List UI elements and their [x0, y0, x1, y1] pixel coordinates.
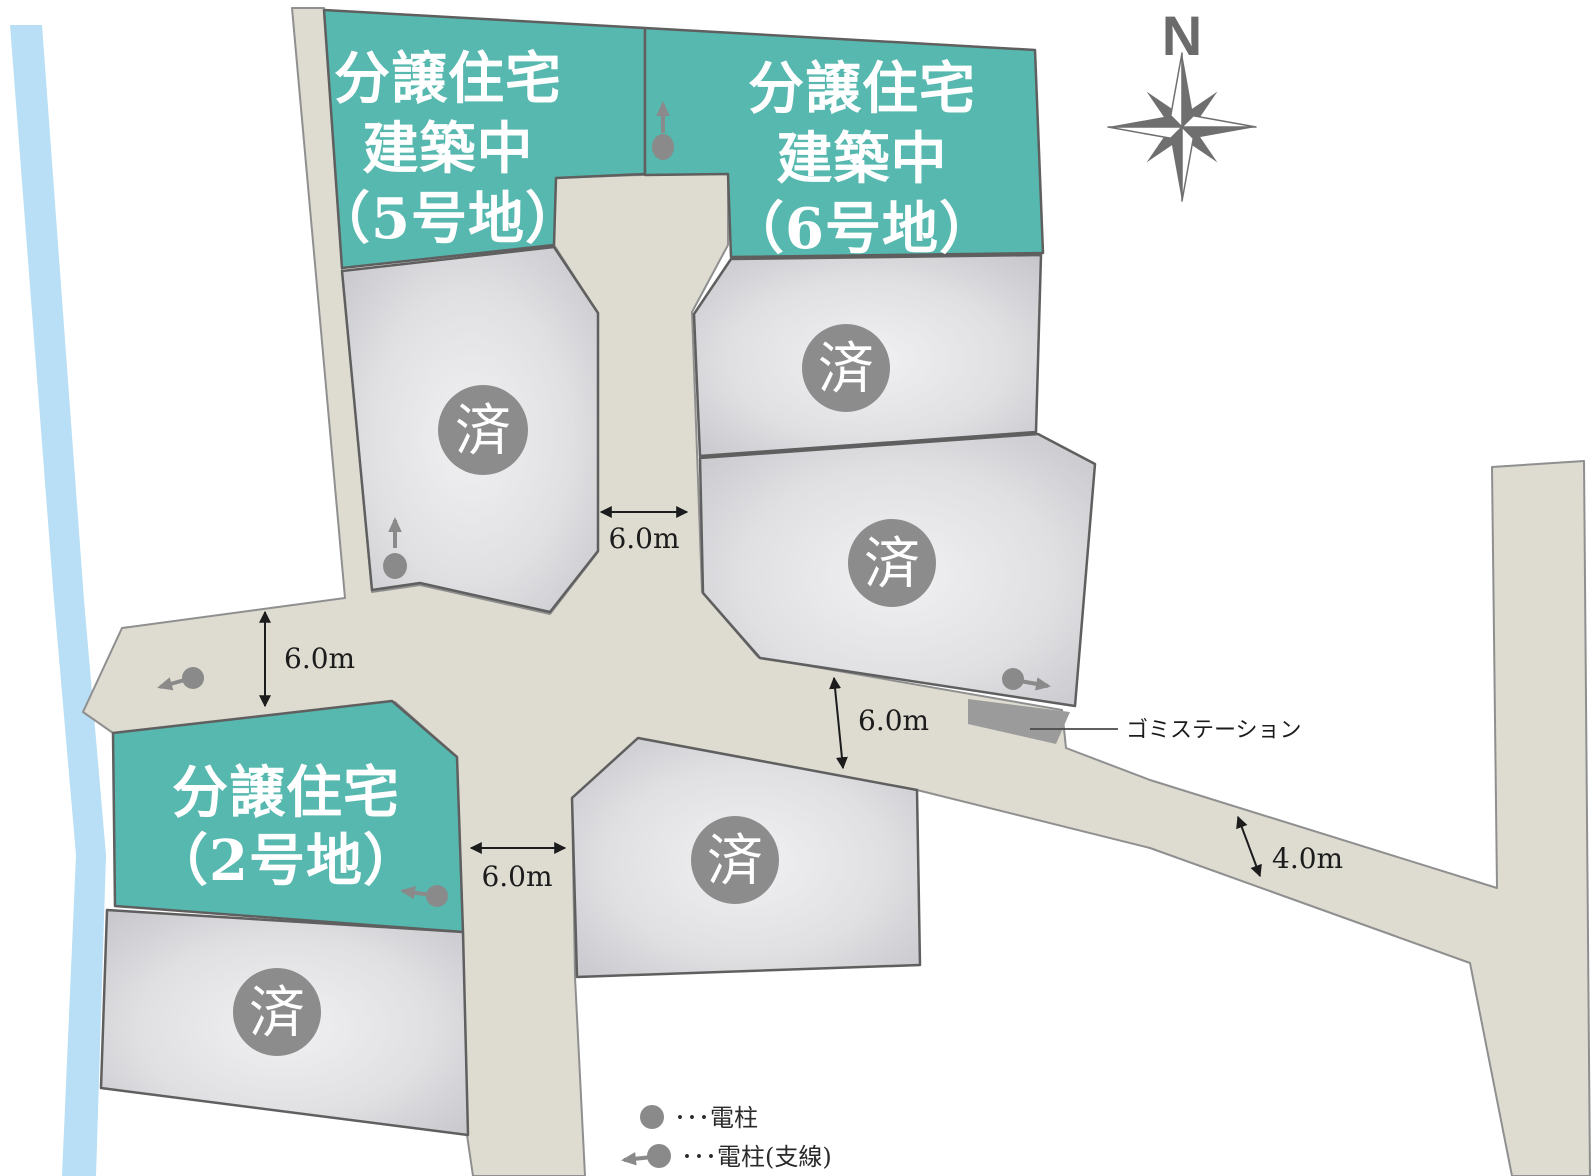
sold-badge: 済: [691, 816, 779, 904]
dimension-label-south-road: 6.0m: [481, 860, 552, 893]
lot-2-label-line2: （2号地）: [152, 828, 420, 894]
sold-badge-label: 済: [455, 399, 511, 464]
compass: N: [1108, 4, 1256, 201]
legend-item-pole-guy: ･･･電柱(支線): [624, 1143, 832, 1171]
lot-2-label-line1: 分譲住宅: [172, 760, 400, 826]
garbage-station-label: ゴミステーション: [1126, 718, 1302, 743]
sold-badge-label: 済: [864, 532, 920, 597]
lot-6-label-line1: 分譲住宅: [748, 56, 976, 122]
river: [10, 25, 106, 1176]
sold-badge: 済: [802, 324, 890, 412]
lot-5-label-line2: 建築中: [363, 116, 534, 182]
sold-badge: 済: [848, 519, 936, 607]
sold-badge: 済: [233, 968, 321, 1056]
legend-item-pole: ･･･電柱: [640, 1104, 758, 1132]
legend: ･･･電柱 ･･･電柱(支線): [624, 1104, 832, 1171]
utility-pole-icon: [640, 1105, 664, 1129]
sold-badge-label: 済: [249, 981, 305, 1046]
lot-5-label-line1: 分譲住宅: [334, 46, 562, 112]
dimension-label-east-road: 6.0m: [858, 704, 929, 737]
subdivision-map: 済 済 済 済 済 分譲住宅 建築中 （5号地） 分譲住宅 建築中 （6号地） …: [0, 0, 1592, 1176]
legend-item-pole-label: ･･･電柱: [674, 1104, 758, 1132]
utility-pole-guy-wire-icon: [647, 1144, 671, 1168]
map-canvas: 済 済 済 済 済 分譲住宅 建築中 （5号地） 分譲住宅 建築中 （6号地） …: [0, 0, 1592, 1176]
lot-6-label-line2: 建築中: [777, 126, 948, 192]
legend-item-pole-guy-label: ･･･電柱(支線): [681, 1143, 832, 1171]
sold-badge: 済: [438, 385, 528, 475]
sold-badge-label: 済: [707, 829, 763, 894]
dimension-label-north-road: 6.0m: [608, 522, 679, 555]
dimension-label-west-road: 6.0m: [284, 642, 355, 675]
compass-rose-icon: [1108, 53, 1256, 201]
garbage-station-callout: ゴミステーション: [1030, 718, 1302, 743]
sold-badge-label: 済: [818, 337, 874, 402]
lot-5-label-line3: （5号地）: [314, 186, 582, 252]
dimension-label-southeast-road: 4.0m: [1272, 842, 1343, 875]
lot-6-label-line3: （6号地）: [728, 196, 996, 262]
